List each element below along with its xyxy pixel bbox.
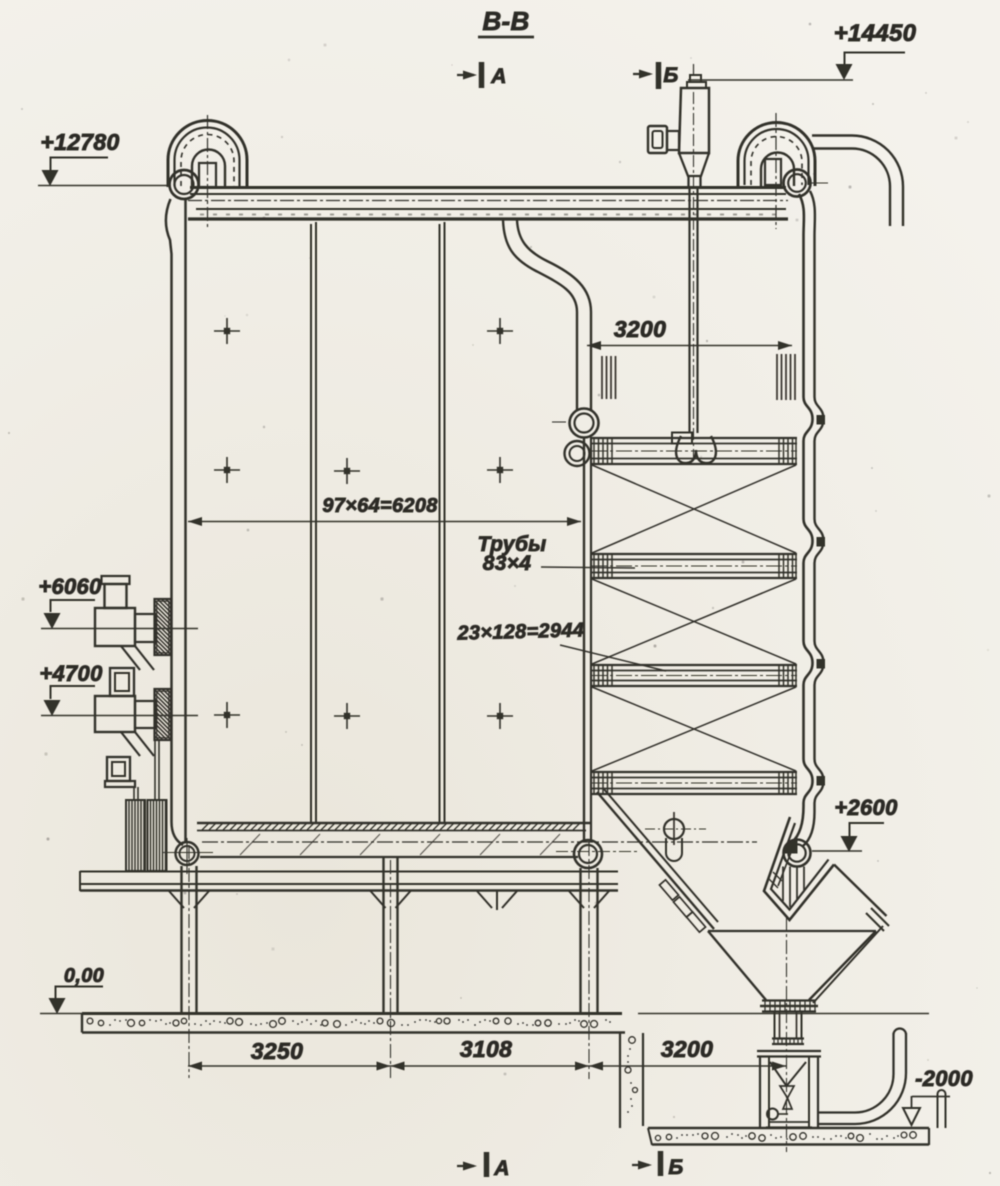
svg-text:В-В: В-В	[482, 6, 529, 36]
svg-text:3108: 3108	[460, 1036, 512, 1062]
svg-text:+14450: +14450	[834, 20, 917, 47]
svg-text:+6060: +6060	[38, 574, 102, 599]
svg-text:-2000: -2000	[915, 1066, 973, 1091]
svg-text:3200: 3200	[661, 1036, 713, 1062]
svg-text:А: А	[493, 1157, 509, 1180]
svg-text:3200: 3200	[614, 316, 666, 342]
svg-text:+4700: +4700	[39, 661, 103, 686]
svg-text:+2600: +2600	[834, 795, 898, 820]
svg-text:Б: Б	[663, 64, 678, 87]
svg-text:0,00: 0,00	[64, 965, 104, 987]
svg-text:83×4: 83×4	[483, 552, 532, 575]
svg-text:97×64=6208: 97×64=6208	[322, 495, 438, 517]
svg-text:+12780: +12780	[40, 129, 119, 155]
svg-text:3250: 3250	[251, 1038, 303, 1064]
svg-text:23×128=2944: 23×128=2944	[456, 619, 584, 644]
svg-text:А: А	[490, 65, 506, 88]
svg-text:Б: Б	[668, 1156, 683, 1179]
